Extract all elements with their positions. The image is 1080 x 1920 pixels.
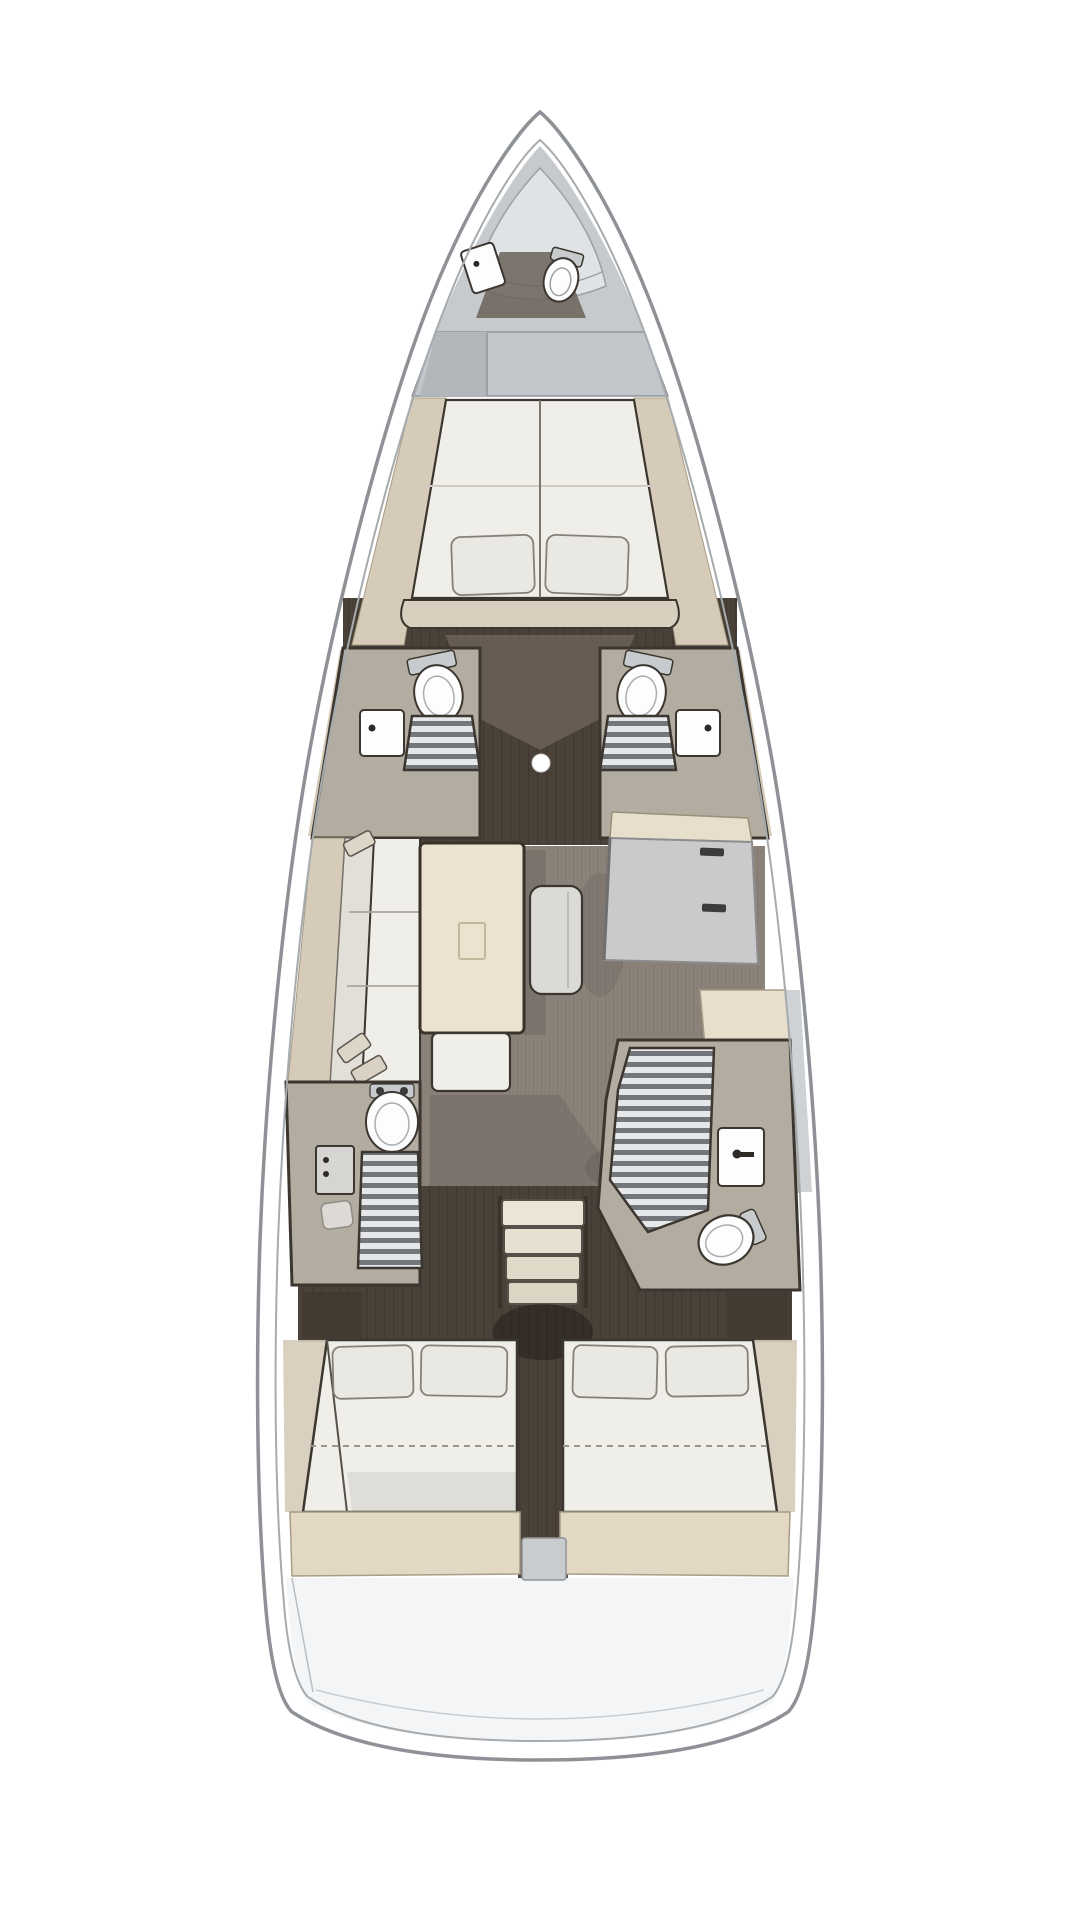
forward-head-port-faucet <box>369 725 376 732</box>
yacht-floor-plan-page: Sailing yacht interior layout, top-down … <box>0 0 1080 1920</box>
aft-cabin-port <box>283 1340 520 1576</box>
galley-drawer-handle-1 <box>700 848 724 857</box>
stern-interior <box>286 1578 794 1742</box>
aft-head-port-sink <box>316 1146 354 1194</box>
galley-cabinet-top <box>610 812 752 842</box>
aft-cabin-starboard <box>560 1340 797 1576</box>
aft-berth-port-pillow-2 <box>421 1345 508 1396</box>
aft-berth-port-pillow-1 <box>332 1345 413 1399</box>
galley-cabinet-face <box>604 838 758 964</box>
galley-drawer-handle-2 <box>702 904 726 913</box>
aft-wardrobe-starboard <box>728 1292 788 1338</box>
yacht-floor-plan: Sailing yacht interior layout, top-down … <box>0 0 1080 1920</box>
companionway-step-4 <box>508 1282 578 1304</box>
forward-head-starboard-shower-grate <box>600 716 676 770</box>
vberth-pillow-starboard <box>545 535 629 596</box>
aft-head-starboard-sink <box>718 1128 764 1186</box>
forward-head-port-shower-grate <box>404 716 480 770</box>
corridor-end-step <box>522 1538 566 1580</box>
companionway-step-3 <box>506 1256 580 1280</box>
aft-head-port-shower-grate <box>358 1152 422 1268</box>
forward-head-port-sink <box>360 710 404 756</box>
ottoman <box>530 886 582 994</box>
vberth-footboard <box>401 600 679 628</box>
aft-cabin-port-locker-band <box>290 1512 520 1576</box>
forward-head-starboard-faucet <box>705 725 712 732</box>
aft-berth-port-shadow <box>347 1472 517 1512</box>
companionway-step-1 <box>502 1200 584 1226</box>
aft-berth-starboard-pillow-2 <box>666 1345 749 1396</box>
dining-table <box>420 843 524 1033</box>
aft-head-port-toilet <box>366 1084 418 1152</box>
aft-berth-starboard-pillow-1 <box>572 1345 657 1399</box>
aft-wardrobe-port <box>302 1292 362 1338</box>
aft-head-port-stool <box>320 1200 353 1230</box>
salon-bench <box>432 1033 510 1091</box>
vberth-pillow-port <box>451 535 535 596</box>
aft-head-starboard <box>598 1040 800 1290</box>
companionway <box>493 1196 593 1360</box>
aft-cabin-starboard-locker-band <box>560 1512 790 1576</box>
forward-head-starboard-sink <box>676 710 720 756</box>
mast-step <box>532 754 550 772</box>
aft-head-port <box>286 1082 422 1285</box>
companionway-step-2 <box>504 1228 582 1254</box>
